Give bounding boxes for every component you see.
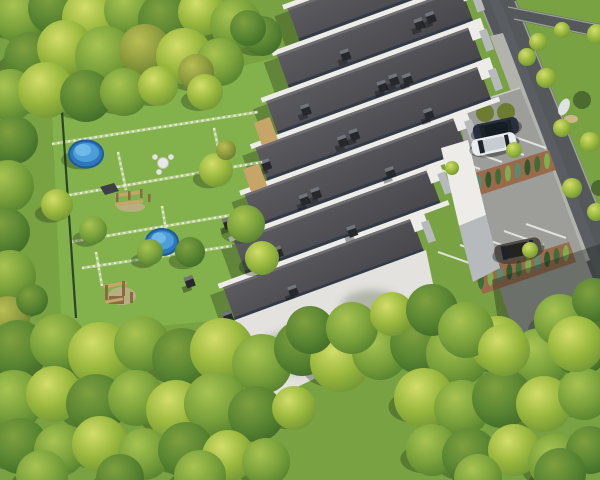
hedge-plant xyxy=(495,169,501,185)
bush xyxy=(553,119,571,137)
bush xyxy=(522,242,538,258)
aerial-render-viewport: Bird's-eye 3D visualization of a terrace… xyxy=(0,0,600,480)
pool-water-highlight xyxy=(75,144,91,156)
bush xyxy=(445,161,459,175)
tree xyxy=(478,324,530,376)
hedge-plant xyxy=(505,165,511,181)
hedge-plant xyxy=(515,162,521,178)
hedge-plant xyxy=(544,153,550,169)
tree xyxy=(272,386,316,430)
tree xyxy=(326,302,378,354)
garden-chair xyxy=(152,154,158,160)
tree xyxy=(230,10,266,46)
playground-post xyxy=(140,189,143,198)
bush xyxy=(580,132,600,152)
garden-chair xyxy=(168,154,174,160)
aerial-view-render xyxy=(0,0,600,480)
hedge-plant xyxy=(485,172,491,188)
playground-post xyxy=(130,292,133,303)
playground-post xyxy=(122,281,125,296)
tree xyxy=(79,216,107,244)
bush xyxy=(506,142,522,158)
garden-table xyxy=(158,158,169,169)
tree xyxy=(138,66,178,106)
hedge-plant xyxy=(524,159,530,175)
dark-bush xyxy=(573,91,591,109)
playground-post xyxy=(105,285,108,300)
bush xyxy=(518,48,536,66)
tree xyxy=(175,237,205,267)
tree xyxy=(216,140,236,160)
bush xyxy=(536,68,556,88)
tree xyxy=(41,189,73,221)
playground-post xyxy=(148,194,151,202)
hedge-plant xyxy=(534,156,540,172)
bush xyxy=(554,22,570,38)
bush xyxy=(562,178,582,198)
playground-post xyxy=(116,193,119,202)
bush xyxy=(529,33,547,51)
garden-chair xyxy=(156,169,162,175)
tree xyxy=(245,241,279,275)
playground-post xyxy=(128,191,131,200)
tree xyxy=(137,239,163,265)
tree xyxy=(227,205,265,243)
tree xyxy=(16,284,48,316)
tree xyxy=(187,74,223,110)
